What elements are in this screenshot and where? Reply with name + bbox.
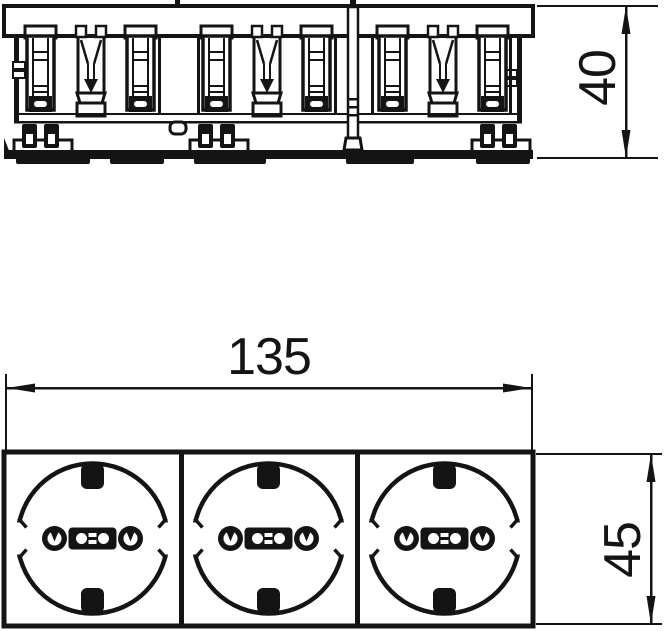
- parting-tick: [175, 0, 180, 8]
- latch-tab: [170, 122, 186, 134]
- drawing-canvas: 40 135 45: [0, 0, 664, 631]
- dimension-depth: 40: [537, 5, 658, 159]
- module-divider: [355, 452, 360, 626]
- module-divider: [179, 452, 184, 626]
- technical-drawing: 40 135 45: [0, 0, 664, 631]
- dimension-depth-label: 40: [569, 50, 627, 106]
- dimension-height: 45: [536, 453, 662, 625]
- dimension-width-label: 135: [227, 328, 311, 386]
- side-view-drawing: [4, 0, 533, 164]
- front-view-drawing: [4, 452, 533, 626]
- parting-tick: [350, 0, 356, 8]
- dimension-width: 135: [5, 328, 533, 452]
- dimension-height-label: 45: [594, 522, 652, 578]
